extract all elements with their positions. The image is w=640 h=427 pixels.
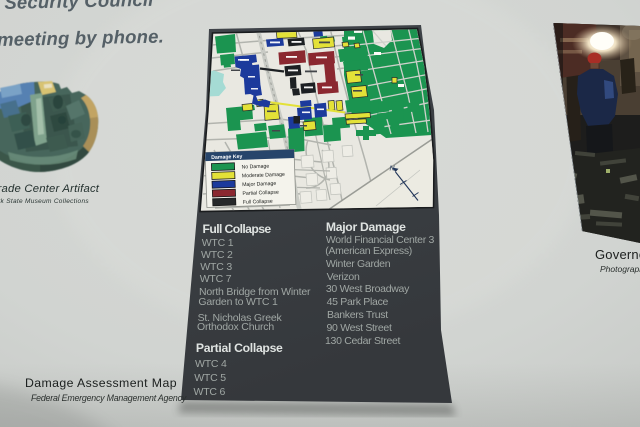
svg-text:Partial Collapse: Partial Collapse xyxy=(242,190,279,197)
svg-text:Major Damage: Major Damage xyxy=(242,181,276,188)
svg-text:No Damage: No Damage xyxy=(241,164,269,171)
svg-text:Full Collapse: Full Collapse xyxy=(243,199,273,206)
svg-text:Damage Key: Damage Key xyxy=(211,154,242,161)
